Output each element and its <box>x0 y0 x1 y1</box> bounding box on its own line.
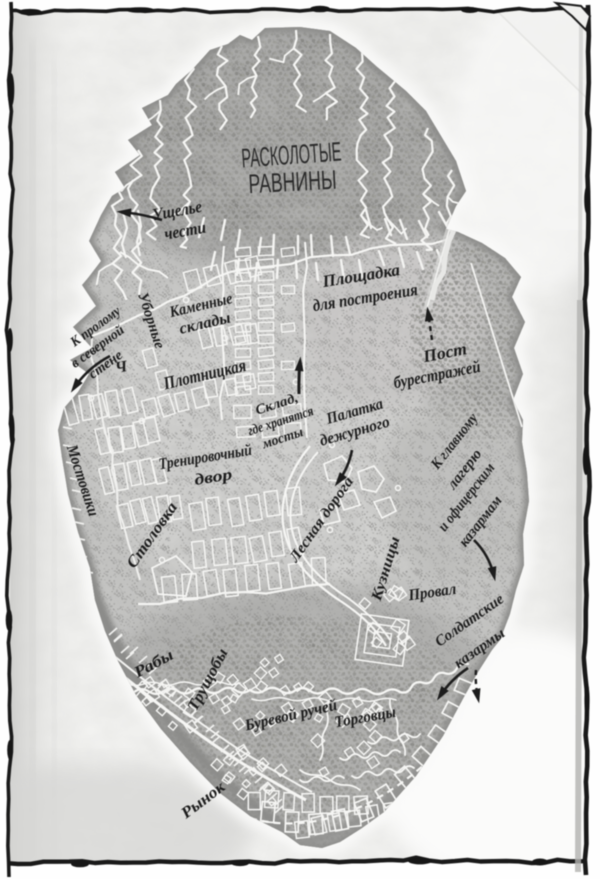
svg-text:РАВНИНЫ: РАВНИНЫ <box>248 165 337 200</box>
